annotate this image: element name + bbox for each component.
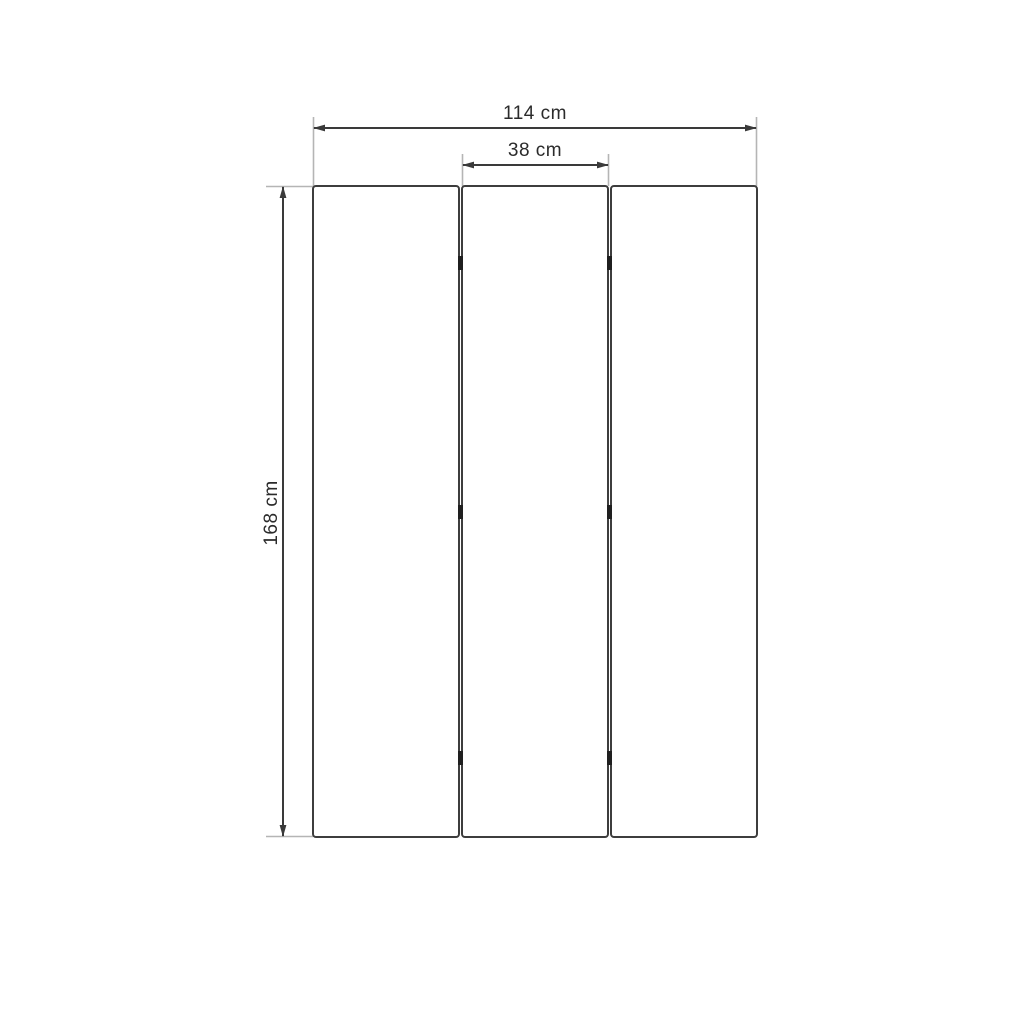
height-label: 168 cm bbox=[261, 480, 282, 545]
panels bbox=[313, 186, 757, 837]
hinge-right-top bbox=[607, 256, 612, 270]
panel-right bbox=[611, 186, 757, 837]
hinge-right-bottom bbox=[607, 751, 612, 765]
hinge-right-middle bbox=[607, 505, 612, 519]
diagram-svg: 114 cm 38 cm 168 cm bbox=[0, 0, 1024, 1024]
hinge-left-top bbox=[458, 256, 463, 270]
hinge-left-bottom bbox=[458, 751, 463, 765]
hinge-left-middle bbox=[458, 505, 463, 519]
panel-left bbox=[313, 186, 459, 837]
panel-width-label: 38 cm bbox=[508, 140, 562, 161]
total-width-label: 114 cm bbox=[503, 103, 567, 124]
panel-middle bbox=[462, 186, 608, 837]
dimension-diagram: 114 cm 38 cm 168 cm bbox=[0, 0, 1024, 1024]
